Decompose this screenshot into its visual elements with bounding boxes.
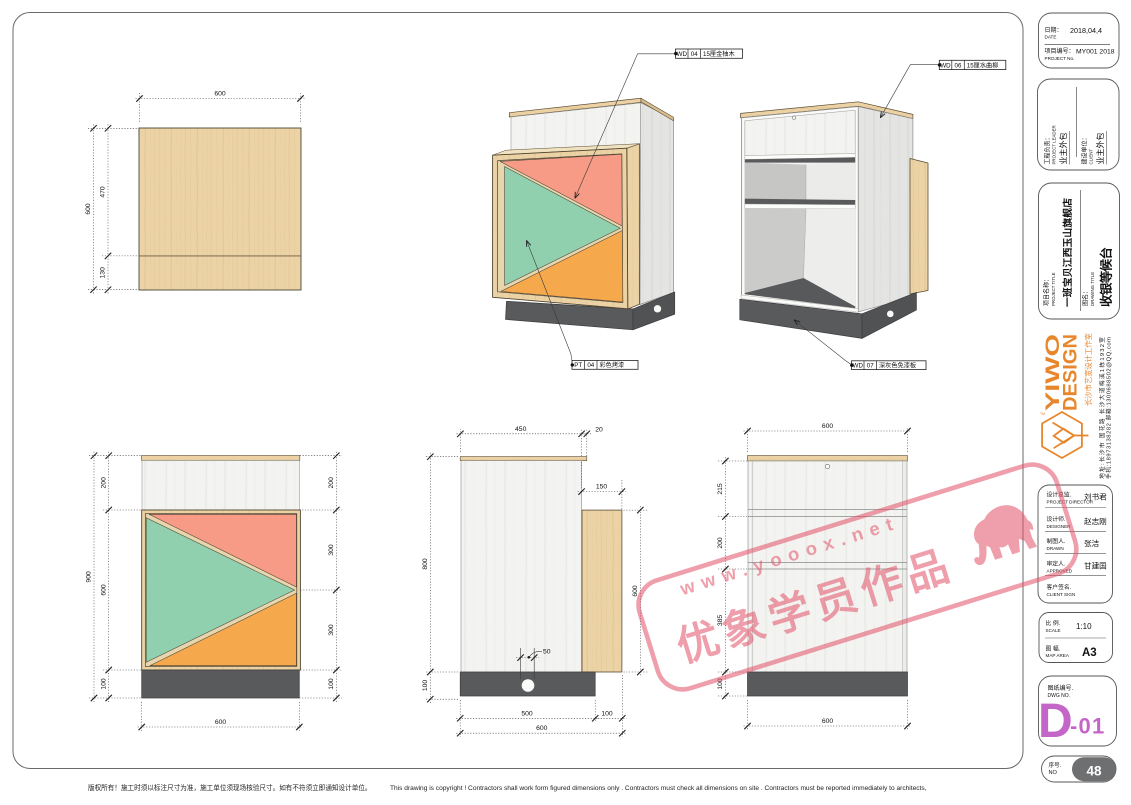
svg-text:600: 600 xyxy=(822,718,834,725)
svg-text:1:10: 1:10 xyxy=(1076,622,1092,631)
svg-text:-01: -01 xyxy=(1070,714,1105,739)
svg-text:业主外包: 业主外包 xyxy=(1058,133,1068,165)
svg-text:版权所有！施工时须以标注尺寸为准，施工单位须现场核验尺寸。如: 版权所有！施工时须以标注尺寸为准，施工单位须现场核验尺寸。如有不符须立即通知设计… xyxy=(88,783,372,792)
svg-text:DRAWN: DRAWN xyxy=(1047,546,1064,551)
svg-text:一班宝贝江西玉山旗舰店: 一班宝贝江西玉山旗舰店 xyxy=(1061,198,1074,307)
svg-text:甘建国: 甘建国 xyxy=(1084,561,1107,571)
svg-text:800: 800 xyxy=(422,558,429,570)
svg-text:WD: WD xyxy=(677,51,688,58)
svg-text:手机:18973138282 邮箱:1300688502@Q: 手机:18973138282 邮箱:1300688502@QQ.com xyxy=(1105,337,1113,479)
svg-text:50: 50 xyxy=(543,649,551,656)
svg-text:300: 300 xyxy=(328,624,335,636)
svg-text:张洁: 张洁 xyxy=(1084,538,1100,548)
svg-text:04: 04 xyxy=(691,51,698,58)
svg-text:项目编号：: 项目编号： xyxy=(1045,47,1075,55)
svg-text:SCALE: SCALE xyxy=(1046,628,1061,633)
svg-text:100: 100 xyxy=(601,710,613,717)
svg-text:D: D xyxy=(1038,695,1073,748)
svg-text:DESIGN: DESIGN xyxy=(1061,334,1082,411)
svg-text:600: 600 xyxy=(100,584,107,596)
svg-text:600: 600 xyxy=(214,91,226,98)
svg-text:彩色烤漆: 彩色烤漆 xyxy=(600,361,625,369)
svg-text:100: 100 xyxy=(328,678,335,690)
svg-text:图名：: 图名： xyxy=(1082,288,1090,306)
svg-text:500: 500 xyxy=(521,710,533,717)
svg-text:100: 100 xyxy=(100,678,107,690)
svg-text:MY001 2018: MY001 2018 xyxy=(1076,49,1115,56)
svg-text:215: 215 xyxy=(717,483,724,495)
svg-text:15厘水曲柳: 15厘水曲柳 xyxy=(967,61,999,69)
svg-text:600: 600 xyxy=(632,585,639,597)
svg-text:PT: PT xyxy=(574,362,582,369)
svg-text:地址:长沙市 国花路 长沙大道梅溪1栋1932室: 地址:长沙市 国花路 长沙大道梅溪1栋1932室 xyxy=(1098,337,1106,479)
svg-text:200: 200 xyxy=(717,537,724,549)
svg-text:DRAWING TITLE: DRAWING TITLE xyxy=(1090,272,1095,306)
svg-text:设计师.: 设计师. xyxy=(1047,515,1066,523)
svg-text:600: 600 xyxy=(536,725,548,732)
svg-text:PROJECT No.: PROJECT No. xyxy=(1045,56,1075,61)
svg-text:比 例.: 比 例. xyxy=(1046,619,1061,627)
svg-text:A3: A3 xyxy=(1082,647,1097,659)
svg-text:48: 48 xyxy=(1086,764,1102,779)
svg-text:900: 900 xyxy=(86,571,93,583)
svg-text:600: 600 xyxy=(215,719,227,726)
svg-text:100: 100 xyxy=(422,680,429,692)
svg-text:WD: WD xyxy=(940,62,951,69)
svg-text:DATE: DATE xyxy=(1045,35,1057,40)
svg-text:工程负责：: 工程负责： xyxy=(1044,134,1052,164)
svg-text:MAP AREA: MAP AREA xyxy=(1046,653,1070,658)
svg-text:项目名称：: 项目名称： xyxy=(1043,276,1051,306)
svg-text:600: 600 xyxy=(822,423,834,430)
svg-text:450: 450 xyxy=(515,426,527,433)
svg-text:470: 470 xyxy=(100,186,107,198)
svg-text:收银等候台: 收银等候台 xyxy=(1099,247,1114,307)
svg-text:长沙市艺宽设计工作室: 长沙市艺宽设计工作室 xyxy=(1084,333,1093,406)
svg-text:客户签名.: 客户签名. xyxy=(1047,583,1072,591)
svg-text:07: 07 xyxy=(867,362,874,369)
svg-text:CLIENT: CLIENT xyxy=(1089,149,1094,165)
svg-text:200: 200 xyxy=(100,477,107,489)
svg-text:600: 600 xyxy=(85,203,92,215)
svg-text:NO: NO xyxy=(1049,770,1058,776)
svg-text:CLIENT SIGN: CLIENT SIGN xyxy=(1047,592,1076,597)
svg-text:序号.: 序号. xyxy=(1049,761,1062,769)
svg-text:150: 150 xyxy=(596,484,608,491)
svg-text:PROJECT TITLE: PROJECT TITLE xyxy=(1051,272,1056,306)
svg-text:刘书君: 刘书君 xyxy=(1084,492,1107,502)
svg-text:300: 300 xyxy=(328,544,335,556)
svg-text:WD: WD xyxy=(853,362,864,369)
svg-text:业主外包: 业主外包 xyxy=(1095,133,1105,165)
svg-text:130: 130 xyxy=(100,267,107,279)
svg-text:制图人.: 制图人. xyxy=(1047,537,1066,545)
svg-text:PROJECT LEADER: PROJECT LEADER xyxy=(1052,125,1057,164)
svg-text:2018,04,4: 2018,04,4 xyxy=(1070,26,1102,35)
svg-text:DESIGNER: DESIGNER xyxy=(1047,524,1072,529)
svg-text:深灰色免漆板: 深灰色免漆板 xyxy=(879,361,916,369)
svg-text:日期：: 日期： xyxy=(1045,26,1063,34)
svg-text:赵志刚: 赵志刚 xyxy=(1084,516,1107,526)
svg-text:图纸编号.: 图纸编号. xyxy=(1048,684,1074,692)
svg-text:图 幅.: 图 幅. xyxy=(1046,645,1061,653)
svg-text:TM: TM xyxy=(1040,412,1045,416)
svg-text:06: 06 xyxy=(955,62,962,69)
svg-text:20: 20 xyxy=(595,427,603,434)
svg-text:建设单位：: 建设单位： xyxy=(1081,134,1089,164)
svg-text:15厘金柚木: 15厘金柚木 xyxy=(703,50,735,58)
svg-text:04: 04 xyxy=(587,362,594,369)
svg-text:This drawing is copyright ! C: This drawing is copyright ! Contractors … xyxy=(390,785,927,792)
svg-text:审定人.: 审定人. xyxy=(1047,560,1066,568)
svg-text:200: 200 xyxy=(328,477,335,489)
